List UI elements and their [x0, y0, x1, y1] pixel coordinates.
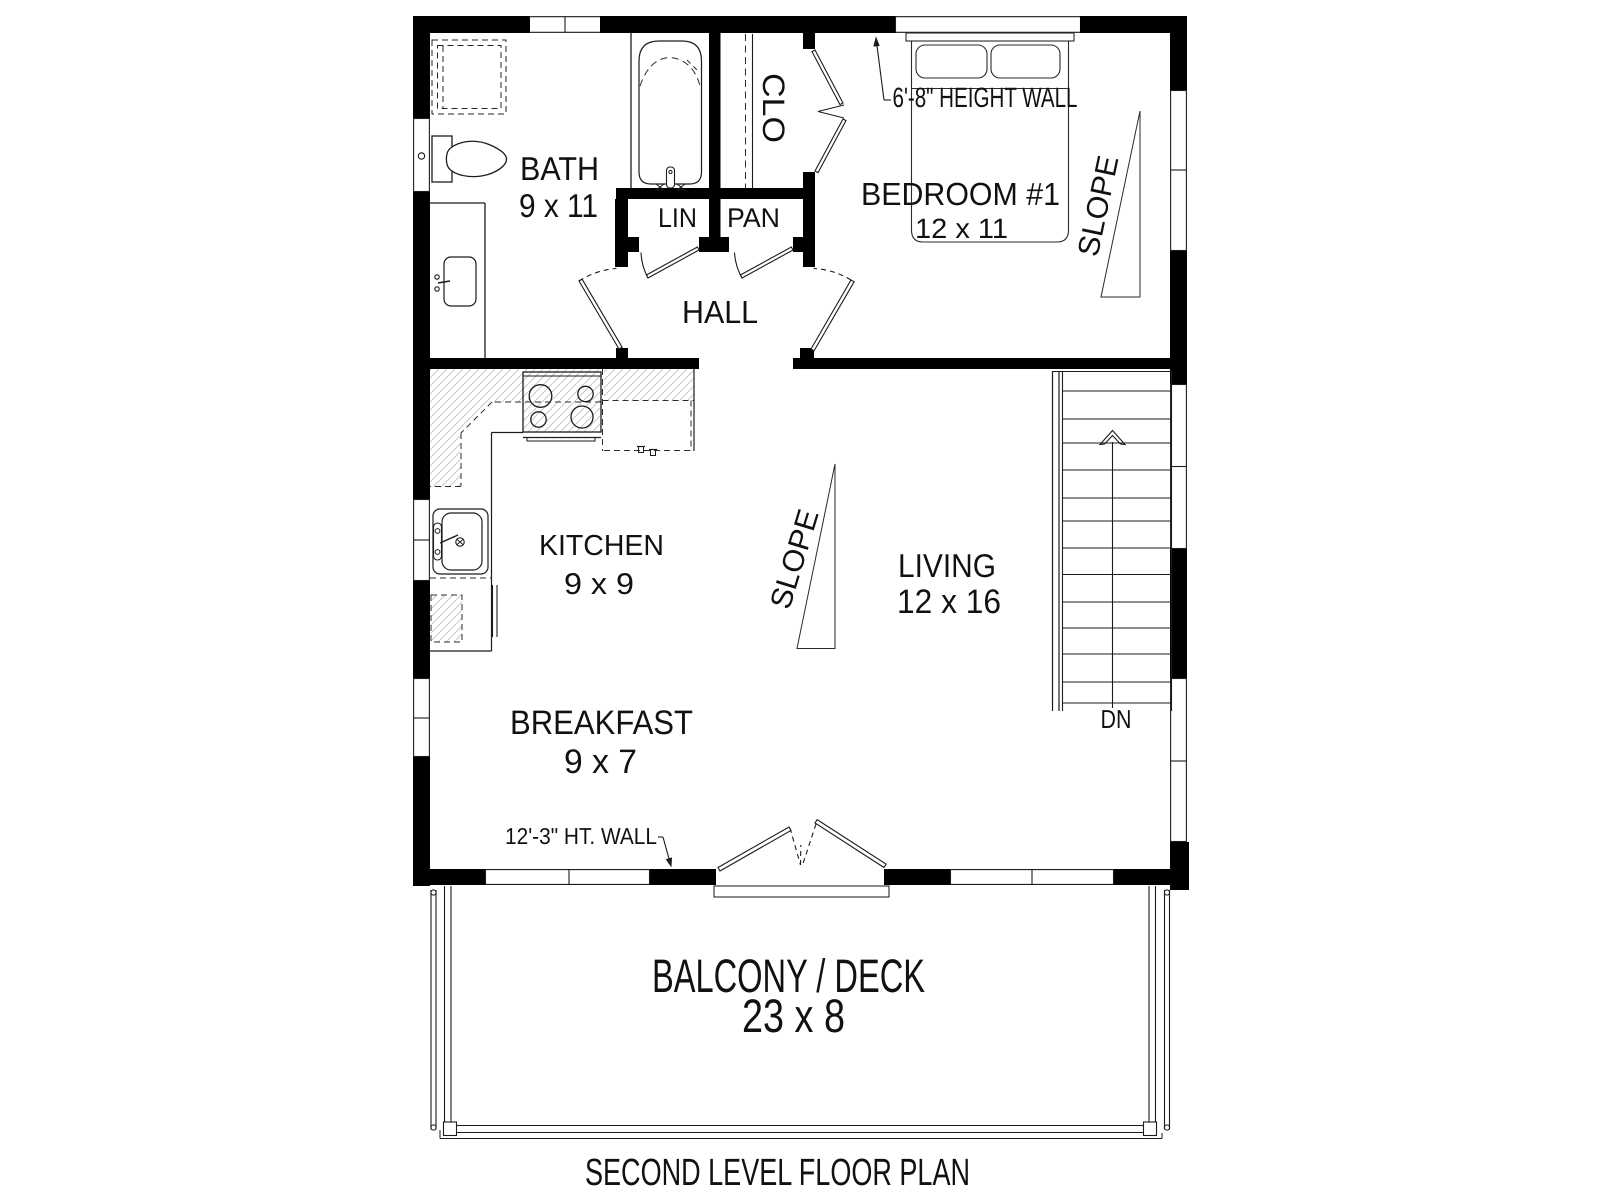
svg-text:9 x 7: 9 x 7: [564, 743, 637, 781]
svg-text:BEDROOM #1: BEDROOM #1: [861, 176, 1060, 212]
svg-text:BATH: BATH: [520, 150, 599, 187]
svg-text:9 x 11: 9 x 11: [519, 187, 598, 224]
svg-text:KITCHEN: KITCHEN: [539, 530, 664, 562]
svg-text:HALL: HALL: [682, 294, 758, 330]
svg-text:LIN: LIN: [658, 203, 697, 233]
svg-text:SECOND LEVEL FLOOR PLAN: SECOND LEVEL FLOOR PLAN: [585, 1152, 970, 1194]
svg-text:BREAKFAST: BREAKFAST: [510, 704, 693, 742]
svg-text:23 x 8: 23 x 8: [742, 989, 845, 1042]
svg-text:12'-3" HT. WALL: 12'-3" HT. WALL: [505, 823, 657, 849]
svg-text:9 x 9: 9 x 9: [564, 568, 634, 601]
svg-text:LIVING: LIVING: [898, 547, 996, 584]
svg-text:12 x 16: 12 x 16: [897, 583, 1001, 621]
svg-text:12 x 11: 12 x 11: [915, 213, 1008, 244]
svg-text:CLO: CLO: [756, 73, 791, 143]
svg-text:6'-8" HEIGHT WALL: 6'-8" HEIGHT WALL: [893, 82, 1078, 113]
svg-text:DN: DN: [1101, 704, 1132, 734]
svg-text:PAN: PAN: [727, 203, 780, 233]
